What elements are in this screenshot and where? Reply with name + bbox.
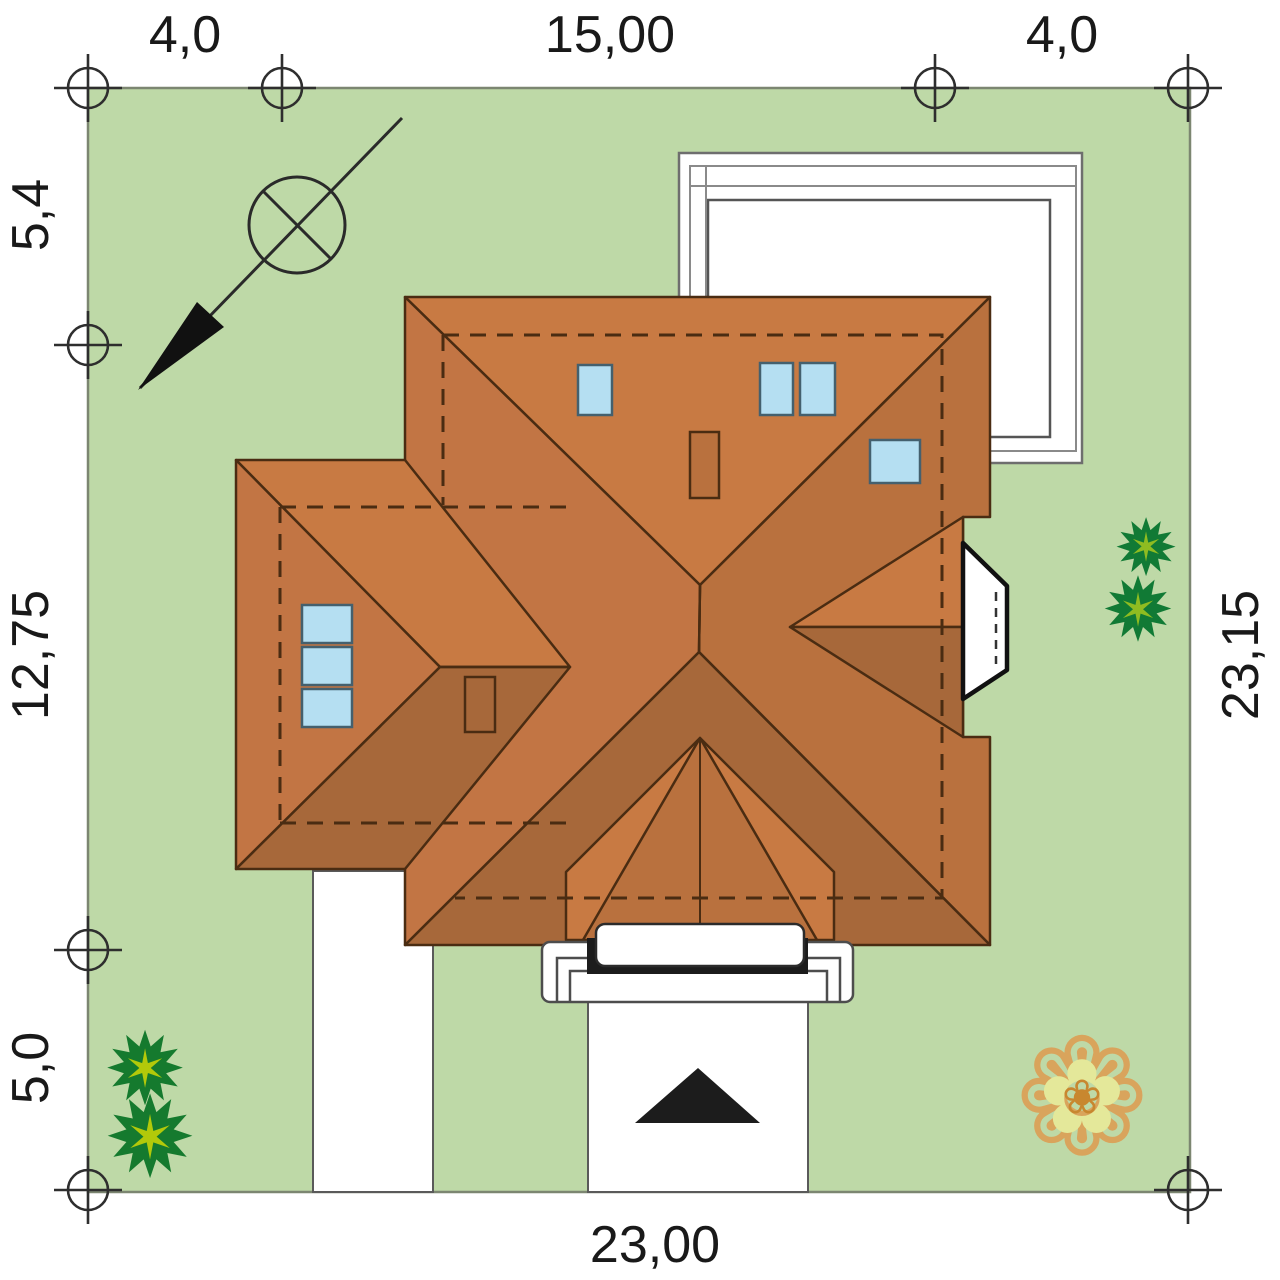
leafy-bush-core-icon: ❀ bbox=[1062, 1072, 1102, 1125]
dimension-label-left-middle: 12,75 bbox=[2, 590, 60, 720]
skylight-window bbox=[800, 363, 835, 415]
site-plan-canvas: ✹ ✶ ✹ ✶ ✹ ✶ ✹ ✶ ❁ ✿ ❀ 4,0 15,00 4,0 5,4 … bbox=[0, 0, 1280, 1280]
skylight-window bbox=[870, 440, 920, 483]
dimension-label-top-left: 4,0 bbox=[149, 6, 221, 64]
plant-inner-icon: ✶ bbox=[1119, 584, 1158, 636]
skylight-window bbox=[760, 363, 793, 415]
bush-inner-icon: ✶ bbox=[125, 1105, 175, 1172]
chimney bbox=[690, 432, 719, 498]
skylight-window bbox=[302, 689, 352, 727]
dimension-label-top-right: 4,0 bbox=[1026, 6, 1098, 64]
chimney bbox=[465, 677, 495, 732]
dimension-label-right: 23,15 bbox=[1212, 590, 1270, 720]
dimension-label-bottom: 23,00 bbox=[590, 1216, 720, 1274]
dimension-label-left-bottom: 5,0 bbox=[2, 1032, 60, 1104]
skylight-window bbox=[578, 365, 612, 415]
skylight-window bbox=[302, 647, 352, 685]
skylight-window bbox=[302, 605, 352, 643]
entrance-canopy bbox=[596, 924, 804, 966]
dimension-label-top-center: 15,00 bbox=[545, 6, 675, 64]
dimension-label-left-top: 5,4 bbox=[2, 179, 60, 251]
